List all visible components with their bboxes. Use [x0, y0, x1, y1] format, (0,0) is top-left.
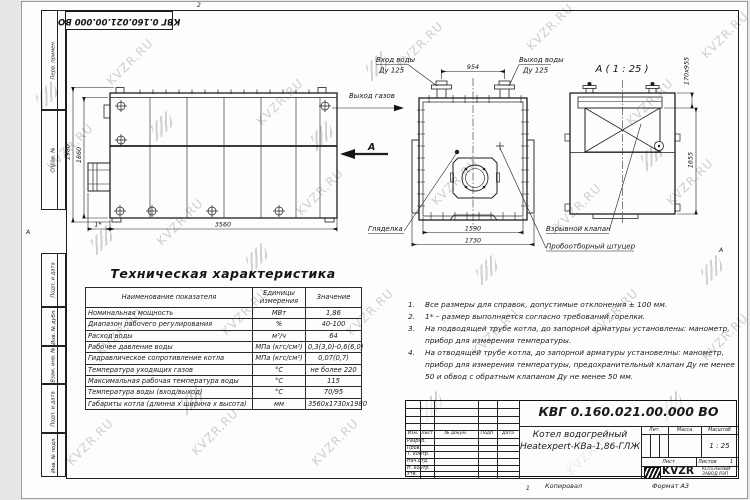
spec-cell: Номинальная мощность	[86, 307, 253, 318]
spec-cell: °С	[253, 376, 306, 387]
tb-row-prov: Пров.	[407, 446, 421, 451]
tb-scale-value: 1 : 25	[701, 442, 738, 450]
spec-section: Техническая характеристика Наименование …	[85, 266, 361, 410]
dim-1730: 1730	[465, 237, 481, 245]
spec-cell: Диапазон рабочего регулирования	[86, 319, 253, 330]
spec-row: Температура уходящих газов°Сне более 220	[86, 364, 362, 375]
tb-sheets-label: Листов	[698, 459, 717, 465]
spec-table: Наименование показателя Единицы измерени…	[85, 287, 362, 410]
tb-lit-label: Лит.	[641, 428, 668, 433]
label-water-in-dn: Ду 125	[378, 67, 405, 75]
label-gas-out: Выход газов	[349, 92, 395, 100]
front-view: Вход воды Ду 125 Выход воды Ду 125 954 В…	[332, 56, 564, 247]
gas-out-arrow	[394, 105, 404, 111]
zone-number-top: 2	[197, 2, 201, 9]
kvzr-logo-icon	[644, 467, 661, 479]
label-explosion-valve: Взрывной клапан	[546, 225, 611, 233]
spec-cell: м³/ч	[253, 330, 306, 341]
tb-doc-number: КВГ 0.160.021.00.000 ВО	[519, 404, 738, 419]
zone-number-bottom: 1	[526, 485, 530, 492]
drawing-page: KVZR.RU KVZR.RU KVZR.RU KVZR.RU KVZR.RU …	[0, 0, 750, 500]
section-title: А ( 1 : 25 )	[595, 64, 649, 75]
tb-row-nachotd: Нач.отд.	[407, 459, 428, 464]
spec-cell: Гидравлическое сопротивление котла	[86, 353, 253, 364]
spec-cell: МВт	[253, 307, 306, 318]
zone-letter-right: А	[719, 247, 723, 254]
note-item: 2.1* – размер выполняется согласно требо…	[406, 311, 736, 323]
spec-title: Техническая характеристика	[85, 266, 361, 281]
spec-cell: мм	[253, 398, 306, 409]
section-stubs	[583, 82, 659, 93]
note-item: 4.На отводящей трубе котла, до запорной …	[406, 347, 736, 383]
label-sight-glass: Гляделка	[368, 225, 403, 233]
tb-scale-label: Масштаб	[701, 428, 738, 433]
zone-letter-left: А	[26, 229, 30, 236]
dim-170x955: 170х955	[683, 57, 691, 85]
spec-cell: Температура уходящих газов	[86, 364, 253, 375]
tb-logo-text: KVZR	[662, 465, 694, 477]
spec-row: Температура воды (вход/выход)°С70/95	[86, 387, 362, 398]
label-water-out-dn: Ду 125	[522, 67, 549, 75]
spec-row: Диапазон рабочего регулирования%40-100	[86, 319, 362, 330]
dim-3560: 3560	[215, 221, 231, 229]
sampling-fitting-mark	[496, 142, 504, 150]
stamp-podp-data-1: Подп. и дата	[41, 253, 66, 307]
note-item: 1.Все размеры для справок, допустимые от…	[406, 299, 736, 311]
label-view-a: А	[367, 142, 375, 153]
tb-mass-label: Масса	[668, 428, 701, 433]
spec-cell: 0,3(3,0)-0,6(6,0)	[306, 341, 362, 352]
stamp-vzam-inv: Взам. инв. №	[41, 346, 66, 384]
tb-product-name-2: Heatexpert-КВа-1,86-ГЛЖ	[519, 442, 641, 452]
bolt-marks	[114, 100, 331, 217]
stamp-inv-dubl: Инв. № дубл.	[41, 307, 66, 346]
spec-row: Расход водым³/ч64	[86, 330, 362, 341]
spec-cell: 1,86	[306, 307, 362, 318]
spec-row: Номинальная мощностьМВт1,86	[86, 307, 362, 318]
sight-glass-mark	[455, 150, 459, 154]
dim-burner: 1*	[94, 221, 101, 229]
spec-row: Гидравлическое сопротивление котлаМПа (к…	[86, 353, 362, 364]
tb-col-dokum: № докум.	[434, 431, 478, 436]
view-a-arrow	[340, 149, 388, 159]
spec-cell: °С	[253, 364, 306, 375]
doc-number-top-box: КВГ 0.160.021.00.000 ВО	[65, 11, 173, 30]
footer-format-label: Формат А3	[652, 482, 689, 490]
front-view-leaders	[332, 65, 551, 234]
dim-1860: 1860	[75, 147, 83, 163]
side-view-dimensions	[71, 88, 337, 232]
notes-list: 1.Все размеры для справок, допустимые от…	[406, 299, 736, 383]
tb-row-tkontr: Т. контр.	[407, 452, 429, 457]
spec-cell: Расход воды	[86, 330, 253, 341]
spec-row: Максимальная рабочая температура воды°С1…	[86, 376, 362, 387]
spec-cell: °С	[253, 387, 306, 398]
spec-cell: 40-100	[306, 319, 362, 330]
tb-col-data: Дата	[497, 431, 519, 436]
spec-cell: Максимальная рабочая температура воды	[86, 376, 253, 387]
spec-cell: 70/95	[306, 387, 362, 398]
spec-cell: 0,07(0,7)	[306, 353, 362, 364]
tb-row-utv: Утв.	[407, 472, 417, 477]
spec-cell: Габариты котла (длинна х ширина х высота…	[86, 398, 253, 409]
spec-cell: 64	[306, 330, 362, 341]
spec-header-value: Значение	[306, 288, 362, 308]
tb-col-podp: Подп.	[478, 431, 497, 436]
dim-1655: 1655	[687, 152, 695, 168]
spec-header-row: Наименование показателя Единицы измерени…	[86, 288, 362, 308]
spec-header-name: Наименование показателя	[86, 288, 253, 308]
label-sampling-fitting: Пробоотборный штуцер	[546, 243, 636, 251]
side-view: 1980 1860 3560 1*	[64, 88, 338, 232]
tb-logo-sub2: ЗАВОД РЭП	[702, 472, 728, 477]
label-water-out: Выход воды	[519, 56, 564, 64]
note-item: 3.На подводящей трубе котла, до запорной…	[406, 323, 736, 347]
spec-cell: Рабочее давление воды	[86, 341, 253, 352]
stamp-podp-data-2: Подп. и дата	[41, 384, 66, 433]
burner-hatch	[451, 158, 500, 198]
stamp-sprav-no: Справ. №	[41, 110, 66, 210]
stamp-inv-podl: Инв. № подл.	[41, 433, 66, 477]
tb-product-name-1: Котел водогрейный	[519, 430, 641, 440]
spec-row: Рабочее давление водыМПа (кгс/см²)0,3(3,…	[86, 341, 362, 352]
tb-sheets-value: 1	[730, 459, 733, 465]
footer-copy-label: Копировал	[545, 482, 582, 490]
label-water-in: Вход воды	[376, 56, 416, 64]
dim-954: 954	[467, 63, 479, 71]
spec-cell: %	[253, 319, 306, 330]
spec-cell: Температура воды (вход/выход)	[86, 387, 253, 398]
spec-cell: не более 220	[306, 364, 362, 375]
tb-col-list: Лист	[420, 431, 434, 436]
tb-row-razrab: Разраб.	[407, 439, 426, 444]
spec-cell: МПа (кгс/см²)	[253, 341, 306, 352]
tb-row-nkontr: Н. контр.	[407, 466, 430, 471]
title-block: КВГ 0.160.021.00.000 ВО Котел водогрейны…	[405, 400, 737, 477]
spec-row: Габариты котла (длинна х ширина х высота…	[86, 398, 362, 409]
section-view: А ( 1 : 25 ) 170х955 1655 Взрывной клапа…	[500, 57, 698, 251]
spec-cell: 115	[306, 376, 362, 387]
tb-col-izm: Изм.	[406, 431, 420, 436]
spec-cell: МПа (кгс/см²)	[253, 353, 306, 364]
spec-cell: 3560х1730х1980	[306, 398, 362, 409]
dim-1590: 1590	[465, 225, 481, 233]
spec-header-units: Единицы измерения	[253, 288, 306, 308]
